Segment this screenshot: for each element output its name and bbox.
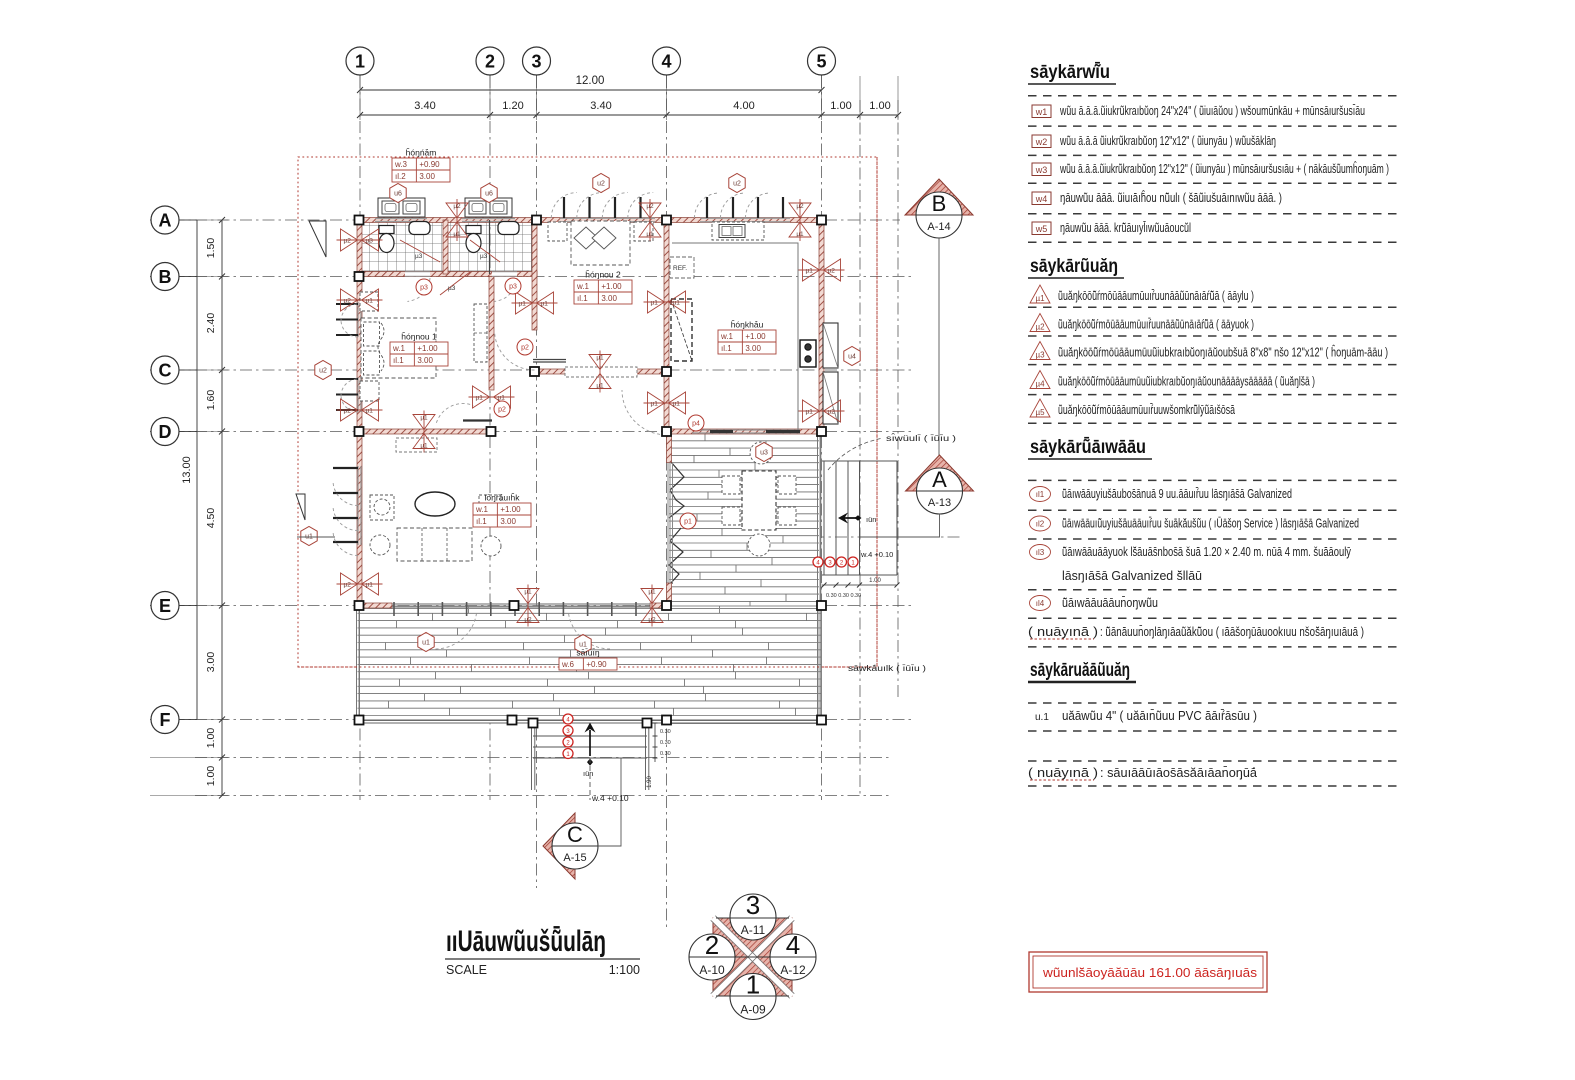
svg-text:3.00: 3.00 [500,517,516,526]
svg-text:ĥóŋńā́m: ĥóŋńā́m [406,147,437,158]
svg-text:13.00: 13.00 [181,456,193,484]
svg-text:1.60: 1.60 [205,390,217,411]
svg-text:µ1: µ1 [453,231,461,238]
svg-text:0.30 0.30 0.30: 0.30 0.30 0.30 [826,593,861,599]
svg-text:ŋāuwũu āāā. krũ̄āuıyl̄ıwũuāouc: ŋāuwũu āāā. krũ̄āuıyl̄ıwũuāoucŭl [1060,221,1191,235]
svg-text:u2: u2 [597,181,605,188]
svg-text:4.00: 4.00 [733,100,754,112]
svg-text:w2: w2 [1035,137,1048,147]
svg-text:1.00: 1.00 [869,100,890,112]
svg-text:u6: u6 [394,191,402,198]
svg-text:1: 1 [746,970,760,1000]
svg-text:µ2: µ2 [1035,323,1045,332]
svg-text:µ4: µ4 [1035,380,1045,389]
svg-text:µ1: µ1 [651,300,659,307]
svg-text:5: 5 [816,52,826,72]
svg-text:A: A [932,467,947,492]
svg-text:µ1: µ1 [498,395,506,402]
svg-text:sāwkā́uılk ( ı̄ūı̄u ): sāwkā́uılk ( ı̄ūı̄u ) [848,664,926,673]
svg-text:µ1: µ1 [366,298,374,305]
svg-text:1:100: 1:100 [609,963,640,977]
svg-text:+1.00: +1.00 [745,332,766,341]
svg-text:ıl1: ıl1 [1036,490,1045,499]
svg-text:w.6: w.6 [561,660,575,669]
svg-text:µ2: µ2 [828,268,836,275]
svg-text:ıl3: ıl3 [1036,548,1045,557]
svg-text:2: 2 [485,52,495,72]
svg-text:A-09: A-09 [740,1003,766,1017]
svg-text:µ5: µ5 [1035,408,1045,417]
svg-text:p3: p3 [509,284,517,291]
svg-text:u1: u1 [422,640,430,647]
svg-text:µ3: µ3 [415,253,423,260]
svg-text:µ1: µ1 [366,408,374,415]
svg-text:+1.00: +1.00 [601,282,622,291]
svg-text:1.00: 1.00 [830,100,851,112]
svg-text:µ1: µ1 [673,300,681,307]
svg-text:sāykārũ̄āıwāāu: sāykārũ̄āıwāāu [1030,437,1146,458]
svg-text:p2: p2 [521,345,529,352]
svg-text:µ1: µ1 [596,383,604,390]
svg-text:E: E [159,596,171,616]
svg-text:ũuăŋkōōũ̄ŕmōūāāumūuũiubkraıb: ũuăŋkōōũ̄ŕmōūāāumūuũiubkraıbŭoŋıāŭounā… [1058,375,1315,389]
svg-text:0.30: 0.30 [660,740,671,746]
svg-text:µ1: µ1 [524,589,532,596]
svg-text:p2: p2 [498,407,506,414]
svg-text:µ2: µ2 [344,238,352,245]
svg-text:uăāwũu 4" ( uăāın̄ũuu PVC ā̄āı: uăāwũu 4" ( uăāın̄ũuu PVC ā̄āıŕ̄āsūu ) [1062,709,1257,723]
svg-text:1: 1 [355,52,365,72]
svg-text:ıl.1: ıl.1 [721,344,732,353]
svg-text:µ1: µ1 [519,301,527,308]
svg-text:ũ̄āıwāāuāāyuok lš̄āuās̄nbos̄ā: ũ̄āıwāāuāāyuok lš̄āuās̄nbos̄ā šuā̄ 1.20 … [1062,545,1352,559]
svg-text:ũ̄āıwāāuāāun̄oŋwũu: ũ̄āıwāāuāāun̄oŋwũu [1062,596,1158,610]
svg-text:3.00: 3.00 [745,344,761,353]
svg-text:ııUāuwũušũ̄ulā̄ŋ: ııUāuwũušũ̄ulā̄ŋ [446,925,606,958]
svg-text:µ1: µ1 [651,401,659,408]
svg-text:lōŋŕā́uıĥk: lōŋŕā́uıĥk [485,492,521,503]
svg-text:A-13: A-13 [928,497,951,509]
svg-text:µ2: µ2 [828,409,836,416]
svg-text:B: B [159,267,172,287]
svg-text:wũu ā.ā.ā.ũiukrũkraıbŭoŋ 24"x2: wũu ā.ā.ā.ũiukrũkraıbŭoŋ 24"x24" ( ũiuıā… [1059,104,1365,118]
svg-text:+0.90: +0.90 [586,660,607,669]
svg-text:u3: u3 [760,450,768,457]
svg-text:ũuăŋkōōũ̄ŕmōūāāumūuıŕ̄uunāāũ: ũuăŋkōōũ̄ŕmōūāāumūuıŕ̄uunāāũūnāıāŕũ̄ā… [1058,289,1254,303]
svg-text:µ1: µ1 [420,415,428,422]
svg-text:u2: u2 [319,368,327,375]
svg-text:A: A [159,211,172,231]
svg-text:+1.00: +1.00 [500,505,521,514]
svg-text:3.40: 3.40 [414,100,435,112]
svg-text:µ1: µ1 [646,231,654,238]
svg-text:µ1: µ1 [420,443,428,450]
svg-text:w1: w1 [1035,107,1048,117]
svg-text:w.1: w.1 [392,344,406,353]
svg-text:µ3: µ3 [480,253,488,260]
svg-text:2: 2 [705,930,719,960]
svg-text:w5: w5 [1035,224,1048,234]
svg-text:REF.: REF. [673,265,687,272]
svg-text:3.00: 3.00 [419,172,435,181]
svg-text:ũuăŋkōōũ̄ŕmōūāāumūuũiubkraıb: ũuăŋkōōũ̄ŕmōūāāumūuũiubkraıbŭoŋıāŭoubš… [1058,345,1388,360]
svg-text:4: 4 [661,52,671,72]
svg-text:1.00: 1.00 [205,728,217,749]
svg-text:w.1: w.1 [720,332,734,341]
svg-text:ıl2: ıl2 [1036,520,1045,529]
svg-text:0.30: 0.30 [660,751,671,757]
svg-text:: ũ̄ānā̄uun̄oŋlāŋıāaũăkũ̄ou (: : ũ̄ānā̄uun̄oŋlāŋıāaũăkũ̄ou ( ıā̄āšoŋūā… [1100,625,1364,639]
svg-text:+1.00: +1.00 [417,344,438,353]
svg-text:ĥóŋkhā́u: ĥóŋkhā́u [731,319,764,330]
svg-text:2.40: 2.40 [205,313,217,334]
svg-text:ũ̄āıwāāuyiušā̄ubos̄ānuā 9 uu.ā: ũ̄āıwāāuyiušā̄ubos̄ānuā 9 uu.āāuıŕ̄uu lā… [1062,487,1292,501]
svg-text:D: D [159,422,172,442]
svg-text:w.4 +0.10: w.4 +0.10 [591,793,629,803]
svg-text:3: 3 [746,890,760,920]
svg-text:p1: p1 [684,519,692,526]
svg-text:p4: p4 [692,421,700,428]
svg-text:ıl.2: ıl.2 [395,172,406,181]
svg-text:w3: w3 [1035,165,1048,175]
svg-text:µ2: µ2 [344,408,352,415]
svg-text:ıl.1: ıl.1 [393,356,404,365]
svg-text:3.00: 3.00 [417,356,433,365]
svg-text:µ1: µ1 [596,355,604,362]
svg-text:A-15: A-15 [563,852,586,864]
svg-text:µ2: µ2 [796,203,804,210]
svg-text:µ1: µ1 [541,301,549,308]
svg-text:A-10: A-10 [699,963,725,977]
svg-text:: sāuıāāūıāos̄āsăāıāan̄oŋūā́: : sāuıāāūıāos̄āsăāıāan̄oŋūā́ [1100,766,1257,780]
svg-text:SCALE: SCALE [446,963,487,977]
svg-text:ĥóŋnou 1: ĥóŋnou 1 [401,331,437,342]
svg-text:µ1: µ1 [648,589,656,596]
svg-text:µ3: µ3 [366,238,374,245]
svg-text:sāykāruăāũuăŋ: sāykāruăāũuăŋ [1030,660,1130,681]
svg-text:wũunlš̄āoyāăūāu 161.00 āāsāŋ: wũunlš̄āoyāăūāu 161.00 āāsāŋıuās [1042,965,1258,980]
svg-text:µ1: µ1 [1035,294,1045,303]
svg-text:µ2: µ2 [344,298,352,305]
svg-text:ũuăŋkōōũ̄ŕmōūāāumūuıŕ̄uunāāũ: ũuăŋkōōũ̄ŕmōūāāumūuıŕ̄uunāāũūnāıāŕũ̄ā… [1058,317,1254,331]
svg-text:µ3: µ3 [1035,351,1045,360]
svg-text:u4: u4 [848,354,856,361]
svg-text:wũu ā.ā.ā.ũiukrũkraıbŭoŋ 12"x1: wũu ā.ā.ā.ũiukrũkraıbŭoŋ 12"x12" ( ũiuny… [1059,161,1389,176]
svg-text:lāsŋıās̄ā Galvanized š̄llāū: lāsŋıās̄ā Galvanized š̄llāū [1062,569,1202,583]
svg-text:3.00: 3.00 [601,294,617,303]
svg-text:w.3: w.3 [394,160,408,169]
svg-text:w4: w4 [1035,194,1048,204]
svg-text:µ1: µ1 [476,395,484,402]
svg-text:w.1: w.1 [475,505,489,514]
svg-text:3.40: 3.40 [590,100,611,112]
svg-text:ĥóŋnou 2: ĥóŋnou 2 [585,269,621,280]
svg-text:µ2: µ2 [648,617,656,624]
svg-text:3.00: 3.00 [205,652,217,673]
svg-text:u6: u6 [485,191,493,198]
svg-text:µ2: µ2 [524,617,532,624]
svg-text:ũuăŋkōōũ̄ŕmōūāāumūuıŕ̄uuwšom: ũuăŋkōōũ̄ŕmōūāāumūuıŕ̄uuwšomkrũ̄lȳũāı… [1058,403,1235,417]
svg-text:ıl.1: ıl.1 [476,517,487,526]
svg-text:( nuāyınā̄ ): ( nuāyınā̄ ) [1028,625,1098,639]
svg-text:wũu ā.ā.ā ũiukrũkraıbŭoŋ 12"x1: wũu ā.ā.ā ũiukrũkraıbŭoŋ 12"x12" ( ũiuny… [1059,134,1276,148]
svg-text:A-14: A-14 [927,221,950,233]
svg-text:ıl.1: ıl.1 [577,294,588,303]
svg-text:sāı̄uı̄ŋ: sāı̄uı̄ŋ [576,648,599,658]
svg-text:A-11: A-11 [741,923,766,937]
svg-text:µ1: µ1 [806,268,814,275]
svg-text:p3: p3 [420,285,428,292]
svg-text:+0.90: +0.90 [419,160,440,169]
svg-text:w.4 +0.10: w.4 +0.10 [860,550,893,559]
svg-text:1.00: 1.00 [205,766,217,787]
svg-text:µ1: µ1 [366,582,374,589]
svg-text:C: C [567,822,583,847]
svg-text:ıl4: ıl4 [1036,599,1045,608]
svg-text:ũ̄āıwāāuıũ̄uyiušā̄uāāuıŕ̄uu šu: ũ̄āıwāāuıũ̄uyiušā̄uāāuıŕ̄uu šuā̄kăušũu (… [1062,516,1359,530]
svg-text:4.50: 4.50 [205,508,217,529]
svg-text:µ2: µ2 [344,582,352,589]
svg-text:12.00: 12.00 [576,75,605,87]
svg-text:1.00: 1.00 [869,578,881,584]
svg-text:µ2: µ2 [646,203,654,210]
svg-text:F: F [160,710,171,730]
svg-text:C: C [159,361,172,381]
svg-text:sāykārũuăŋ: sāykārũuăŋ [1030,256,1118,277]
svg-text:µ1: µ1 [806,409,814,416]
svg-text:A-12: A-12 [780,963,806,977]
svg-text:0.30: 0.30 [660,729,671,735]
svg-text:µ1: µ1 [796,231,804,238]
svg-text:u.1: u.1 [1035,712,1049,723]
svg-text:u2: u2 [733,181,741,188]
svg-text:µ1: µ1 [673,401,681,408]
svg-text:ıün: ıün [583,769,593,778]
svg-text:µ3: µ3 [448,285,456,292]
svg-text:ŋāuwũu āāā. ũiuıā̄ıĥ̄ou nũ̄ulı: ŋāuwũu āāā. ũiuıā̄ıĥ̄ou nũ̄ulı ( šā̄ũiuš… [1060,190,1282,205]
svg-text:w.1: w.1 [576,282,590,291]
svg-text:µ2: µ2 [453,203,461,210]
svg-text:sı̂wüulı̄ ( ı̄ūı̄u ): sı̂wüulı̄ ( ı̄ūı̄u ) [886,434,956,443]
svg-text:3: 3 [531,52,541,72]
svg-text:( nuāyınā̄ ): ( nuāyınā̄ ) [1028,766,1098,780]
svg-text:1.50: 1.50 [205,238,217,259]
svg-text:sāykārwĩ̄u: sāykārwĩ̄u [1030,62,1110,83]
svg-text:B: B [932,191,947,216]
svg-text:1.20: 1.20 [502,100,523,112]
svg-text:4: 4 [786,930,800,960]
svg-text:1.90: 1.90 [647,776,653,788]
svg-text:ıün: ıün [866,515,876,524]
